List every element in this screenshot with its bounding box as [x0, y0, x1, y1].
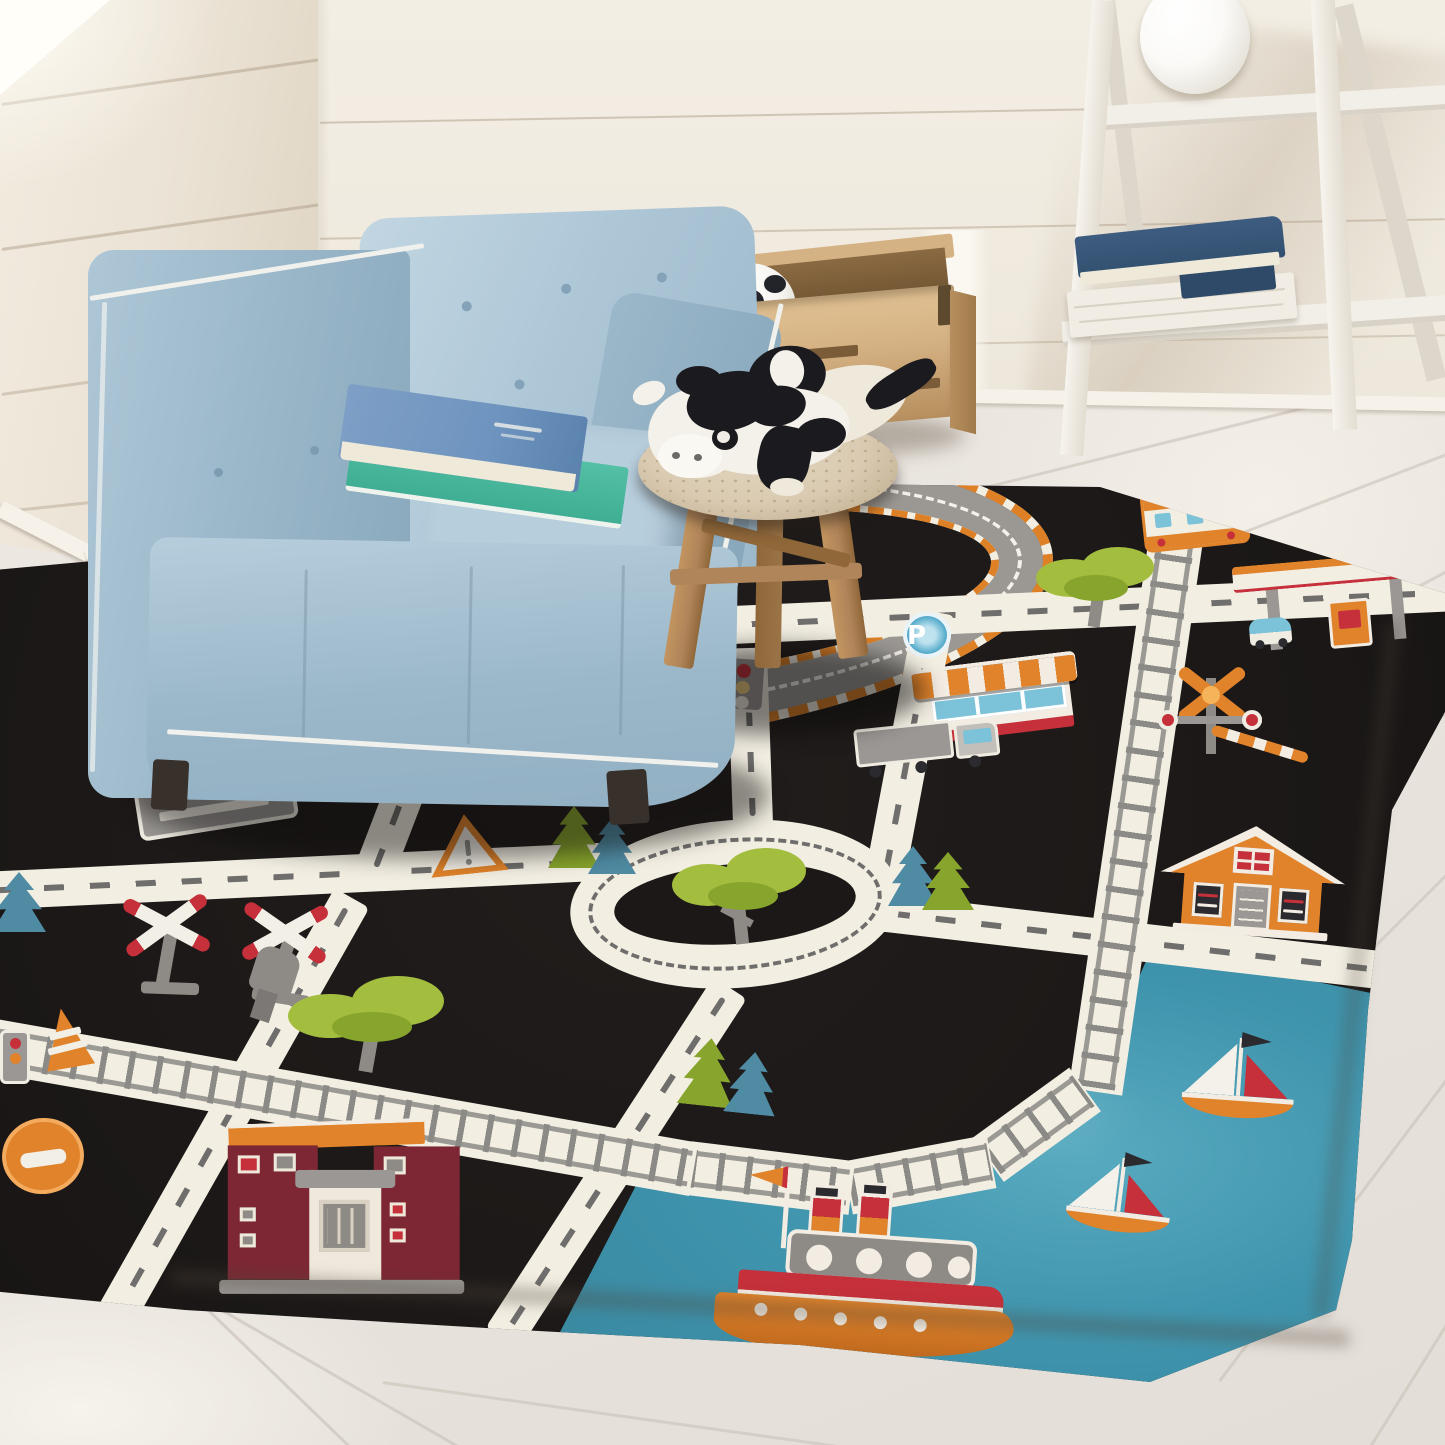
truck-windshield — [963, 728, 992, 745]
cabin-porthole — [855, 1247, 883, 1275]
train-window — [1154, 513, 1171, 529]
crossing-signal — [1150, 664, 1320, 762]
signal-lamp-red — [1246, 714, 1258, 726]
chair-seam — [467, 566, 473, 744]
book-gap-line — [1079, 303, 1283, 323]
crossbuck-sign — [108, 886, 235, 1004]
stool — [600, 330, 940, 710]
boat-flag — [749, 1164, 788, 1189]
station-window — [238, 1155, 260, 1173]
signal-lamp — [1158, 710, 1178, 730]
shop-mullion — [1020, 691, 1026, 709]
cabin-porthole — [947, 1256, 970, 1279]
house-door — [1231, 883, 1272, 932]
car-wheel — [1278, 638, 1288, 648]
chair-seam — [302, 570, 308, 740]
ladder-shelf — [1040, 0, 1445, 470]
no-entry-sign — [0, 1113, 89, 1200]
cow1-forelock — [676, 366, 722, 396]
stool-leg — [817, 501, 868, 660]
tuft-button — [657, 272, 667, 282]
tuft-button — [561, 284, 571, 294]
entrance-door-grid — [327, 1208, 361, 1244]
sail-red — [1244, 1054, 1291, 1099]
tree-canopy-shade — [708, 882, 778, 910]
car-wheel — [1255, 640, 1265, 650]
cow1-hoof — [770, 478, 804, 496]
station-window — [240, 1233, 256, 1247]
cow1-nostril — [672, 452, 680, 459]
station-wing — [374, 1146, 460, 1286]
station-window — [390, 1202, 406, 1216]
cow1-eye-ring — [717, 431, 730, 443]
shutter-slat — [1283, 909, 1303, 913]
shutter-slat — [1197, 903, 1217, 907]
book-label-line — [501, 433, 535, 441]
truck-wheel — [968, 755, 981, 768]
tree-canopy-shade — [1064, 575, 1128, 601]
mini-signal-red — [10, 1038, 21, 1049]
station-window — [240, 1207, 256, 1221]
stack-cap — [816, 1187, 839, 1197]
signal-hub — [1202, 686, 1220, 704]
cabin-porthole — [805, 1244, 833, 1272]
window-bar — [1251, 852, 1255, 870]
station-window — [390, 1228, 406, 1242]
window-glow — [0, 0, 220, 190]
floor-plank-line — [383, 1381, 938, 1445]
house-upper-window — [1233, 847, 1275, 876]
tree-canopy-shade — [332, 1012, 412, 1042]
station-entrance — [309, 1170, 381, 1286]
station-wing — [228, 1145, 318, 1279]
entrance-door — [319, 1200, 369, 1252]
chair-piping-bottom — [167, 729, 718, 768]
round-tree — [1030, 545, 1160, 630]
sailboat — [1057, 1149, 1186, 1245]
vase — [1140, 0, 1250, 94]
shelf-slab-top — [1088, 85, 1445, 131]
sign-base — [141, 981, 199, 995]
tuft-button — [310, 446, 319, 455]
mini-signal — [0, 1030, 30, 1084]
cone-body — [29, 1003, 102, 1073]
house-shutter — [1277, 888, 1309, 924]
crate-side-face — [950, 290, 976, 434]
mini-signal-amber — [10, 1053, 21, 1064]
steamboat — [682, 1160, 1049, 1364]
pine-tree-blue — [723, 1049, 781, 1116]
truck-wheel — [869, 765, 882, 778]
truck-wheel — [915, 760, 928, 773]
chair-foot — [606, 769, 650, 826]
door-grid — [1238, 890, 1264, 924]
playroom-photo: P — [0, 0, 1445, 1445]
chair-foot — [151, 759, 190, 811]
tuft-button — [462, 301, 472, 311]
round-tree — [288, 968, 453, 1078]
roundabout-tree — [668, 842, 818, 952]
signal-lamp-red — [1162, 714, 1174, 726]
stack-cap — [864, 1185, 887, 1195]
entrance-canopy — [295, 1170, 395, 1188]
gas-pump-island — [1327, 597, 1373, 648]
orange-house — [1156, 820, 1348, 945]
train-skirt — [1147, 527, 1248, 550]
truck-trailer — [853, 720, 954, 768]
cabin-porthole — [905, 1251, 933, 1279]
sail-white — [1184, 1040, 1238, 1095]
plush-cows — [620, 330, 940, 500]
barrier-arm — [1210, 724, 1309, 764]
train-light — [1227, 531, 1236, 540]
truck-cab — [953, 719, 1001, 759]
sailboat — [1172, 1032, 1310, 1129]
book-label-line — [494, 422, 542, 433]
sail-white — [1069, 1158, 1121, 1211]
sail-red — [1124, 1175, 1168, 1218]
gas-pump-panel — [1338, 609, 1361, 629]
station-window — [274, 1153, 296, 1171]
cow1-eye — [712, 426, 738, 450]
house-shutter — [1191, 882, 1223, 918]
traffic-cone — [29, 1003, 102, 1073]
shelf-front-leg-left — [1060, 0, 1115, 456]
tuft-button — [514, 379, 524, 389]
cow1-nostril — [694, 454, 702, 461]
shutter-slat — [1198, 893, 1218, 897]
no-entry-bar — [20, 1148, 68, 1169]
small-blue-car — [1248, 616, 1292, 646]
signal-lamp — [1242, 710, 1262, 730]
tower-neck — [250, 988, 278, 1023]
shutter-slat — [1284, 899, 1304, 903]
tuft-button — [214, 468, 223, 477]
